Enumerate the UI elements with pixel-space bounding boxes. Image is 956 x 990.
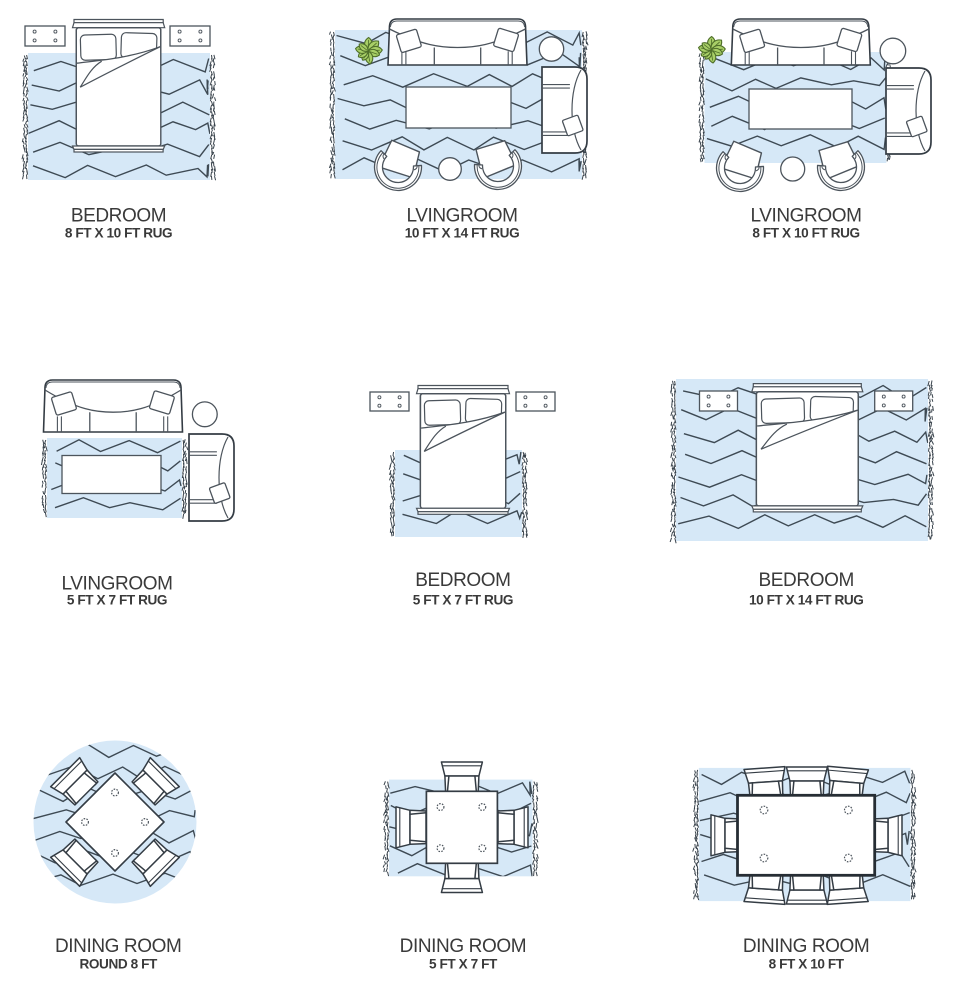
svg-text:10 FT X 14 FT RUG: 10 FT X 14 FT RUG [405,226,519,241]
svg-text:DINING ROOM: DINING ROOM [743,936,870,957]
svg-text:5 FT X 7 FT RUG: 5 FT X 7 FT RUG [413,593,513,608]
svg-text:5 FT X 7 FT: 5 FT X 7 FT [429,957,498,972]
svg-text:8 FT X 10 FT RUG: 8 FT X 10 FT RUG [752,226,859,241]
svg-text:10 FT X 14 FT RUG: 10 FT X 14 FT RUG [749,593,863,608]
svg-text:DINING ROOM: DINING ROOM [400,936,527,957]
svg-text:LVINGROOM: LVINGROOM [406,206,517,227]
svg-text:BEDROOM: BEDROOM [71,206,166,227]
svg-text:BEDROOM: BEDROOM [415,570,510,591]
svg-text:ROUND 8 FT: ROUND 8 FT [80,957,158,972]
svg-text:LVINGROOM: LVINGROOM [750,206,861,227]
svg-text:5 FT X 7 FT RUG: 5 FT X 7 FT RUG [67,593,167,608]
svg-text:LVINGROOM: LVINGROOM [61,574,172,595]
svg-text:8 FT X 10 FT: 8 FT X 10 FT [769,957,845,972]
svg-text:BEDROOM: BEDROOM [759,570,854,591]
svg-text:DINING ROOM: DINING ROOM [55,936,182,957]
svg-text:8 FT X 10 FT RUG: 8 FT X 10 FT RUG [65,226,172,241]
